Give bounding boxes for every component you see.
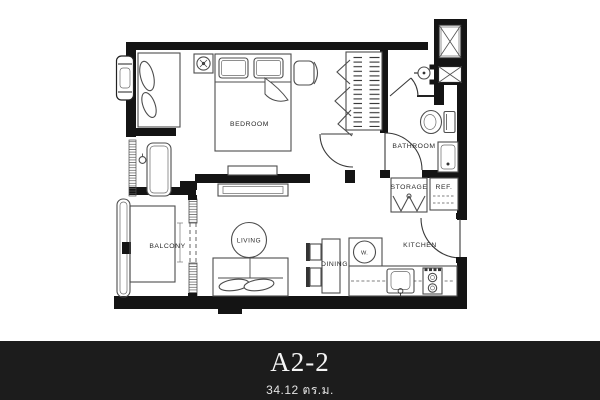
kitchen-sink	[387, 269, 414, 297]
storage-label: STORAGE	[391, 184, 428, 191]
bedroom-label: BEDROOM	[230, 121, 269, 128]
shower-icon	[438, 142, 458, 172]
floor-plan: BEDROOM LIVING BALCONY	[0, 0, 600, 341]
sofa	[213, 258, 288, 296]
hanging-closet	[335, 52, 382, 136]
bathroom-label: BATHROOM	[392, 143, 435, 150]
balcony-label: BALCONY	[149, 243, 185, 250]
bathroom-door	[385, 133, 422, 170]
stove	[423, 268, 442, 294]
living-room: LIVING	[213, 166, 288, 296]
footer-bar: A2-2 34.12 ตร.ม.	[0, 341, 600, 400]
bathroom: BATHROOM	[392, 111, 458, 173]
foyer-door	[390, 78, 418, 96]
balcony-railing	[117, 199, 131, 297]
refrigerator: REF.	[430, 178, 458, 210]
washer-label: W.	[361, 251, 368, 257]
kitchen-label: KITCHEN	[403, 242, 437, 249]
dining-chair	[306, 243, 321, 261]
vanity-nook	[129, 140, 171, 196]
balcony: BALCONY	[117, 199, 186, 297]
ac-condenser-icon	[117, 56, 134, 100]
washing-machine: W.	[349, 238, 382, 267]
entry-door	[421, 213, 467, 263]
storage-unit: STORAGE	[391, 178, 428, 212]
ceiling-lamp-icon	[194, 54, 213, 73]
living-label: LIVING	[237, 238, 261, 245]
kitchen: W. KITCHEN	[349, 238, 457, 297]
dining-label: DINING	[321, 261, 348, 268]
basin-icon	[414, 67, 430, 79]
service-shaft	[430, 19, 468, 85]
pillow	[219, 58, 248, 78]
bed	[215, 54, 291, 151]
bedroom-chair	[294, 61, 318, 85]
pillow	[254, 58, 283, 78]
toilet-icon	[421, 111, 456, 134]
wardrobe	[137, 53, 180, 127]
dining-area: DINING	[306, 239, 348, 293]
ref-label: REF.	[436, 184, 453, 191]
dining-chair	[306, 267, 321, 287]
unit-area: 34.12 ตร.ม.	[0, 381, 600, 400]
bedroom-door	[320, 134, 353, 167]
unit-name: A2-2	[0, 348, 600, 378]
